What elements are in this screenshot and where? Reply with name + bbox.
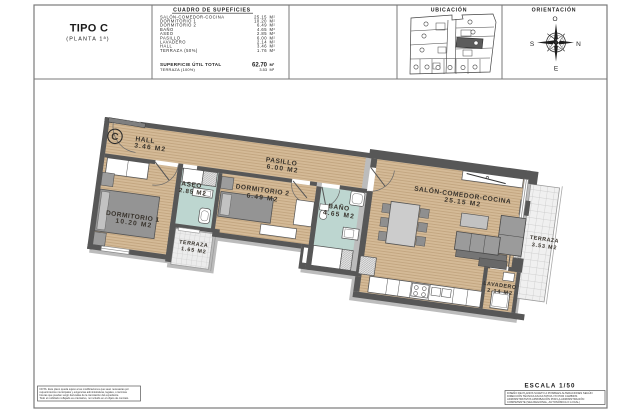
svg-text:UBICACIÓN: UBICACIÓN: [431, 6, 468, 14]
svg-text:O: O: [552, 16, 557, 23]
svg-text:1.76: 1.76: [257, 48, 267, 53]
svg-text:3.53: 3.53: [259, 67, 267, 72]
svg-text:Todo el mobiliario reflejado e: Todo el mobiliario reflejado es orientat…: [40, 396, 130, 400]
svg-text:M²: M²: [270, 67, 275, 72]
svg-text:CUADRO DE SUPEFICIES: CUADRO DE SUPEFICIES: [173, 8, 251, 14]
svg-text:TERRAZA (50%): TERRAZA (50%): [160, 48, 198, 53]
svg-text:C: C: [111, 131, 120, 143]
svg-text:(PLANTA 1ª): (PLANTA 1ª): [66, 37, 110, 43]
svg-text:M²: M²: [270, 48, 276, 53]
svg-text:E: E: [554, 66, 559, 73]
svg-text:TIPO C: TIPO C: [70, 23, 108, 35]
svg-text:N: N: [576, 41, 581, 48]
svg-text:ORIENTACIÓN: ORIENTACIÓN: [532, 6, 577, 14]
svg-text:ESCALA 1/50: ESCALA 1/50: [524, 383, 575, 390]
svg-text:TERRAZA (100%): TERRAZA (100%): [160, 67, 196, 72]
svg-text:S: S: [530, 41, 535, 48]
